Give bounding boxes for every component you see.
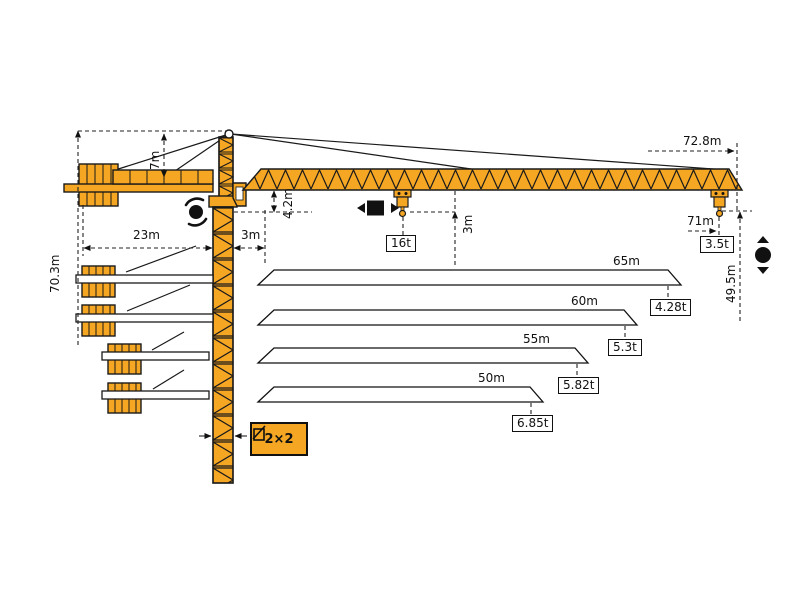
trolley-hook-tip (711, 190, 728, 217)
jib-option-tip-load: 5.82t (558, 377, 599, 394)
max-load-badge: 16t (386, 235, 416, 252)
pendant-lines (112, 134, 727, 171)
total-height-label: 70.3m (48, 255, 62, 293)
slewing-rotation-icon (186, 199, 206, 226)
tower-head-label: 7m (148, 151, 162, 170)
counterweight-row (102, 370, 209, 413)
jib-option-length: 65m (613, 254, 640, 268)
jib (243, 169, 742, 190)
mast-section-badge: 2×2 (250, 422, 308, 456)
crane-diagram: 70.3m 7m 23m 3m 4.2m 3m 72.8m 71m 49.5m … (0, 0, 800, 600)
hoist-up-down-icon (755, 236, 771, 274)
max-radius-label: 72.8m (683, 134, 721, 148)
trolley-hook-mid (394, 190, 411, 217)
jib-bar-60m (258, 310, 637, 325)
tip-radius-label: 71m (687, 214, 714, 228)
counterweight-row (76, 246, 213, 297)
jib-depth-label: 4.2m (281, 188, 295, 219)
jib-bar-55m (258, 348, 588, 363)
jib-option-length: 55m (523, 332, 550, 346)
jib-option-tip-load: 6.85t (512, 415, 553, 432)
jib-option-length: 60m (571, 294, 598, 308)
jib-option-length: 50m (478, 371, 505, 385)
jib-bar-50m (258, 387, 543, 402)
rear-offset-label: 3m (241, 228, 260, 242)
counterweight-options (76, 246, 213, 413)
jib-option-tip-load: 4.28t (650, 299, 691, 316)
counterweight-row (102, 332, 209, 374)
counterjib-radius-label: 23m (133, 228, 160, 242)
jib-option-tip-load: 5.3t (608, 339, 642, 356)
jib-bar-65m (258, 270, 681, 285)
tip-load-badge: 3.5t (700, 236, 734, 253)
hook-height-label: 49.5m (724, 265, 738, 303)
tower-mast (209, 130, 246, 483)
trolley-travel-icon (357, 201, 399, 216)
jib-length-bars (258, 270, 681, 402)
mast-section-icon (252, 424, 267, 442)
hook-drop-label: 3m (461, 215, 475, 234)
mast-section-label: 2×2 (265, 432, 294, 447)
